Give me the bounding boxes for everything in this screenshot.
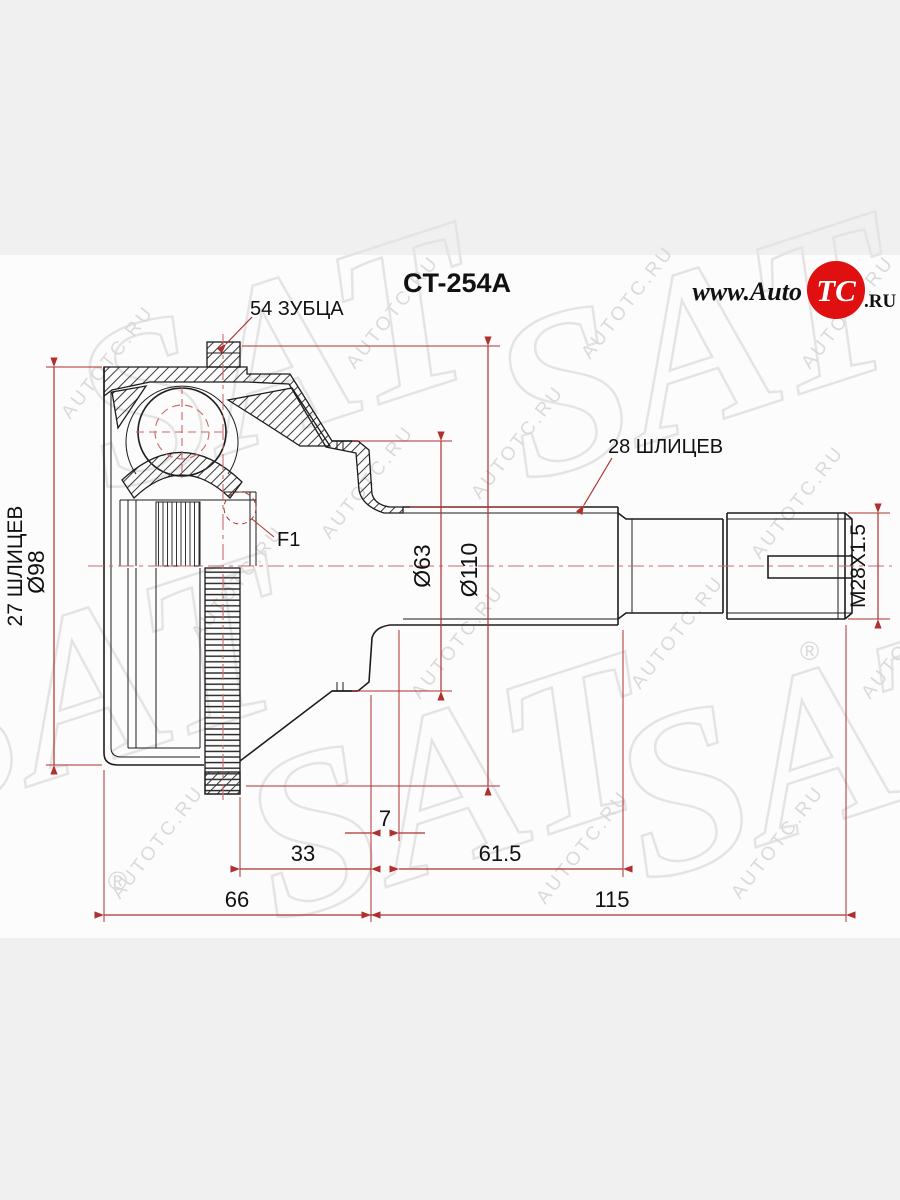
dim-bell-length: 66 xyxy=(225,887,249,912)
logo-prefix: www.Auto xyxy=(692,277,802,306)
watermark-registered: ® xyxy=(108,866,127,896)
part-number: CT-254A xyxy=(403,268,511,298)
label-ring-diameter: Ø110 xyxy=(456,543,482,598)
logo-badge-text: TC xyxy=(816,273,856,308)
dim-shaft-length: 115 xyxy=(594,887,629,912)
logo-suffix: .RU xyxy=(864,291,896,312)
dim-hub-to-groove: 33 xyxy=(291,841,315,866)
hub-spline-bore-section xyxy=(156,502,200,566)
dim-spline-length: 61.5 xyxy=(479,841,522,866)
watermark-registered: ® xyxy=(800,636,819,666)
label-outer-diameter: Ø98 xyxy=(23,550,49,593)
label-teeth-count: 54 ЗУБЦА xyxy=(250,298,344,320)
label-shaft-splines: 28 ШЛИЦЕВ xyxy=(608,436,723,458)
bottom-gray-band xyxy=(0,938,900,1200)
label-thread: M28X1.5 xyxy=(847,524,870,608)
label-boot-diameter: Ø63 xyxy=(409,544,435,587)
label-flange-mark: F1 xyxy=(277,529,300,551)
dim-groove-width: 7 xyxy=(379,806,391,831)
screenshot-root: SAT SAT SAT SAT SAT AUTOTC.RU AUTOTC.RU … xyxy=(0,0,900,1200)
technical-drawing: SAT SAT SAT SAT SAT AUTOTC.RU AUTOTC.RU … xyxy=(0,0,900,1200)
